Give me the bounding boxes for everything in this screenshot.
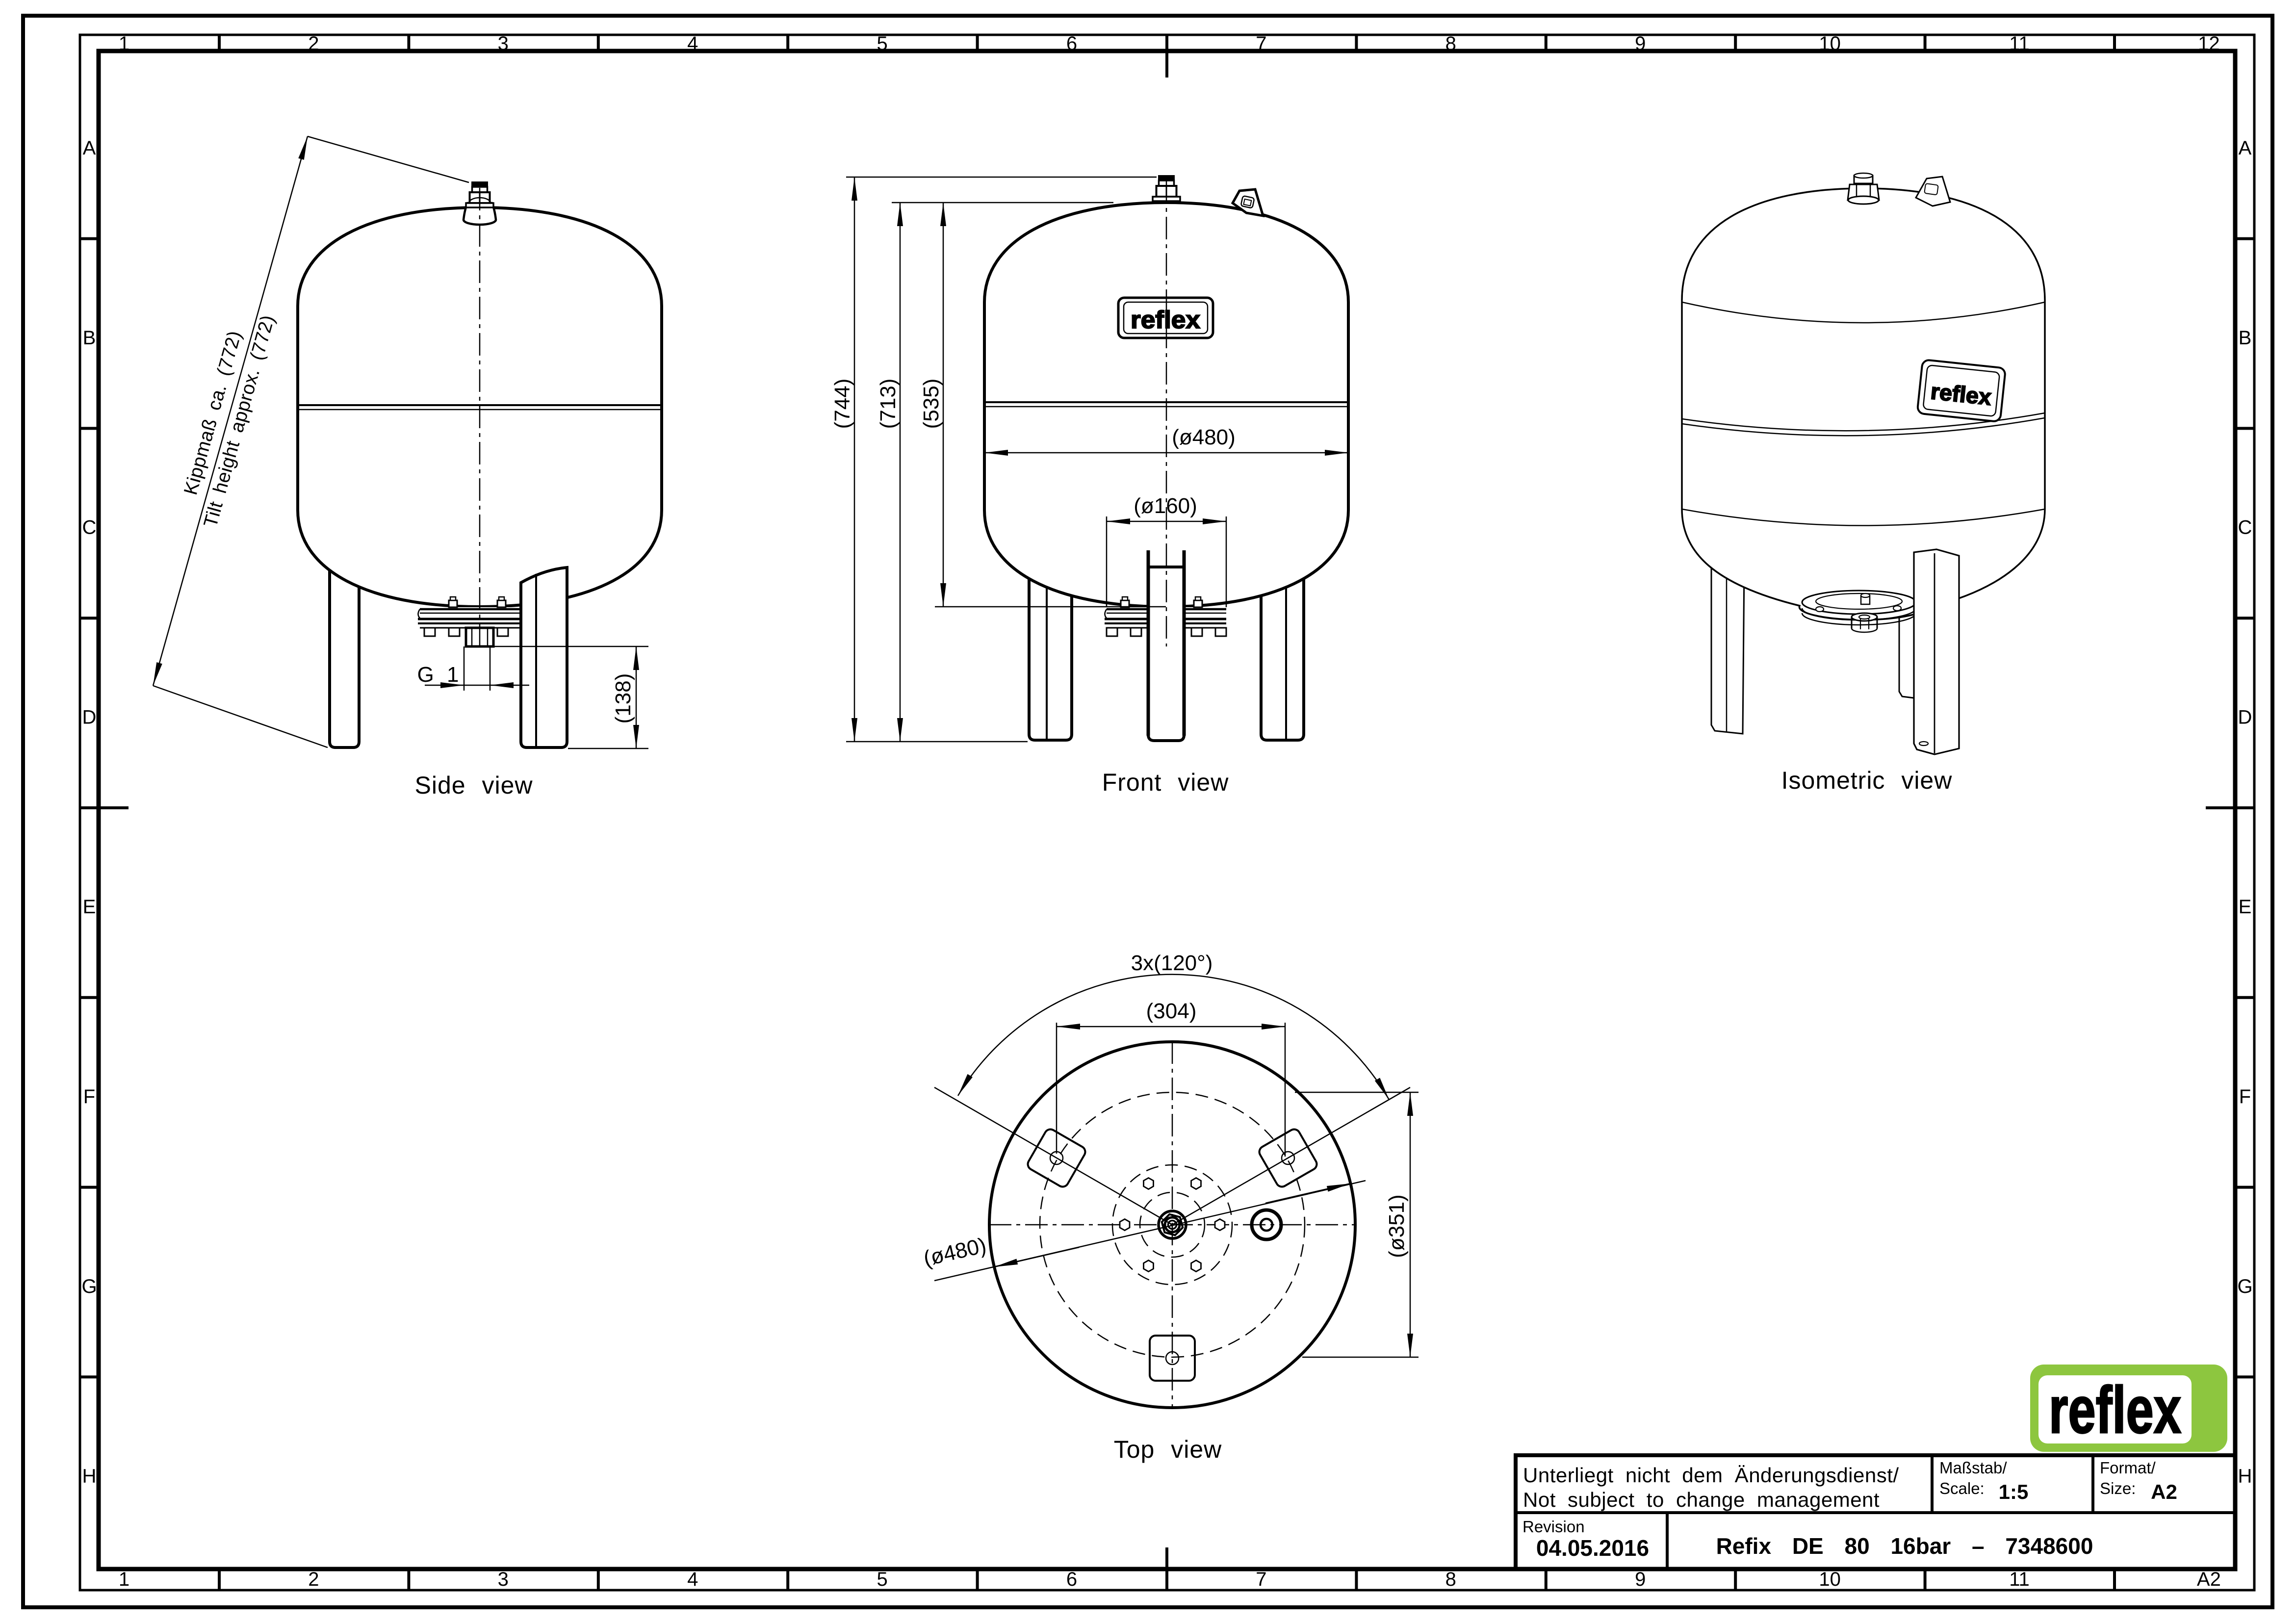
svg-text:8: 8 bbox=[1445, 33, 1456, 54]
svg-text:G 1: G 1 bbox=[417, 663, 459, 687]
svg-text:C: C bbox=[82, 517, 97, 539]
svg-text:reflex: reflex bbox=[2049, 1373, 2181, 1447]
svg-text:(304): (304) bbox=[1146, 999, 1197, 1023]
svg-text:A: A bbox=[2239, 137, 2252, 159]
svg-text:11: 11 bbox=[2009, 1569, 2030, 1590]
svg-text:6: 6 bbox=[1066, 33, 1077, 54]
svg-text:C: C bbox=[2238, 517, 2252, 539]
svg-text:1:5: 1:5 bbox=[1999, 1480, 2029, 1503]
svg-text:7: 7 bbox=[1256, 1569, 1266, 1590]
svg-text:E: E bbox=[2239, 896, 2252, 918]
svg-text:Maßstab/: Maßstab/ bbox=[1939, 1459, 2007, 1477]
svg-text:G: G bbox=[81, 1276, 97, 1297]
svg-text:(713): (713) bbox=[876, 379, 900, 429]
svg-text:Isometric view: Isometric view bbox=[1781, 767, 1953, 794]
svg-text:Scale:: Scale: bbox=[1939, 1479, 1985, 1497]
svg-text:10: 10 bbox=[1819, 1569, 1841, 1590]
svg-text:D: D bbox=[82, 706, 97, 728]
svg-text:3: 3 bbox=[498, 1569, 509, 1590]
svg-text:12: 12 bbox=[2198, 33, 2220, 54]
svg-text:3: 3 bbox=[498, 33, 509, 54]
svg-text:Format/: Format/ bbox=[2100, 1459, 2156, 1477]
svg-text:1: 1 bbox=[119, 1569, 129, 1590]
svg-text:E: E bbox=[83, 896, 96, 918]
svg-text:Refix DE 80 16bar – 7348600: Refix DE 80 16bar – 7348600 bbox=[1716, 1533, 2093, 1559]
svg-text:9: 9 bbox=[1635, 33, 1646, 54]
svg-text:04.05.2016: 04.05.2016 bbox=[1536, 1535, 1649, 1561]
svg-text:5: 5 bbox=[877, 1569, 887, 1590]
svg-text:G: G bbox=[2237, 1276, 2252, 1297]
svg-text:3x(120°): 3x(120°) bbox=[1131, 951, 1213, 975]
svg-text:(744): (744) bbox=[830, 379, 854, 429]
svg-text:A2: A2 bbox=[2197, 1569, 2221, 1590]
svg-text:2: 2 bbox=[308, 33, 319, 54]
svg-text:reflex: reflex bbox=[1131, 306, 1200, 334]
svg-text:11: 11 bbox=[2009, 33, 2030, 54]
svg-text:4: 4 bbox=[687, 1569, 698, 1590]
svg-text:9: 9 bbox=[1635, 1569, 1646, 1590]
svg-text:(138): (138) bbox=[611, 673, 635, 724]
svg-text:D: D bbox=[2238, 706, 2252, 728]
svg-text:8: 8 bbox=[1445, 1569, 1456, 1590]
svg-text:A2: A2 bbox=[2151, 1480, 2177, 1503]
svg-text:(ø160): (ø160) bbox=[1134, 494, 1197, 518]
svg-text:6: 6 bbox=[1066, 1569, 1077, 1590]
svg-text:H: H bbox=[2238, 1466, 2252, 1487]
svg-text:Side view: Side view bbox=[415, 772, 533, 799]
svg-text:(ø351): (ø351) bbox=[1385, 1194, 1409, 1258]
svg-text:Unterliegt nicht dem Änderungs: Unterliegt nicht dem Änderungsdienst/ bbox=[1523, 1464, 1899, 1487]
svg-text:B: B bbox=[83, 327, 96, 349]
svg-text:Top view: Top view bbox=[1114, 1436, 1222, 1463]
svg-text:F: F bbox=[2239, 1086, 2251, 1108]
svg-text:B: B bbox=[2239, 327, 2252, 349]
svg-text:(ø480): (ø480) bbox=[1172, 425, 1236, 449]
svg-text:10: 10 bbox=[1819, 33, 1841, 54]
svg-text:Revision: Revision bbox=[1522, 1518, 1585, 1536]
svg-text:A: A bbox=[83, 137, 96, 159]
svg-text:7: 7 bbox=[1256, 33, 1266, 54]
svg-text:Size:: Size: bbox=[2100, 1479, 2136, 1497]
svg-text:5: 5 bbox=[877, 33, 887, 54]
svg-text:H: H bbox=[82, 1466, 97, 1487]
svg-text:Front view: Front view bbox=[1102, 769, 1229, 796]
svg-text:2: 2 bbox=[308, 1569, 319, 1590]
svg-text:Not subject to change manageme: Not subject to change management bbox=[1523, 1488, 1880, 1511]
svg-text:1: 1 bbox=[119, 33, 129, 54]
svg-text:F: F bbox=[83, 1086, 95, 1108]
svg-text:4: 4 bbox=[687, 33, 698, 54]
svg-text:(535): (535) bbox=[919, 379, 943, 429]
